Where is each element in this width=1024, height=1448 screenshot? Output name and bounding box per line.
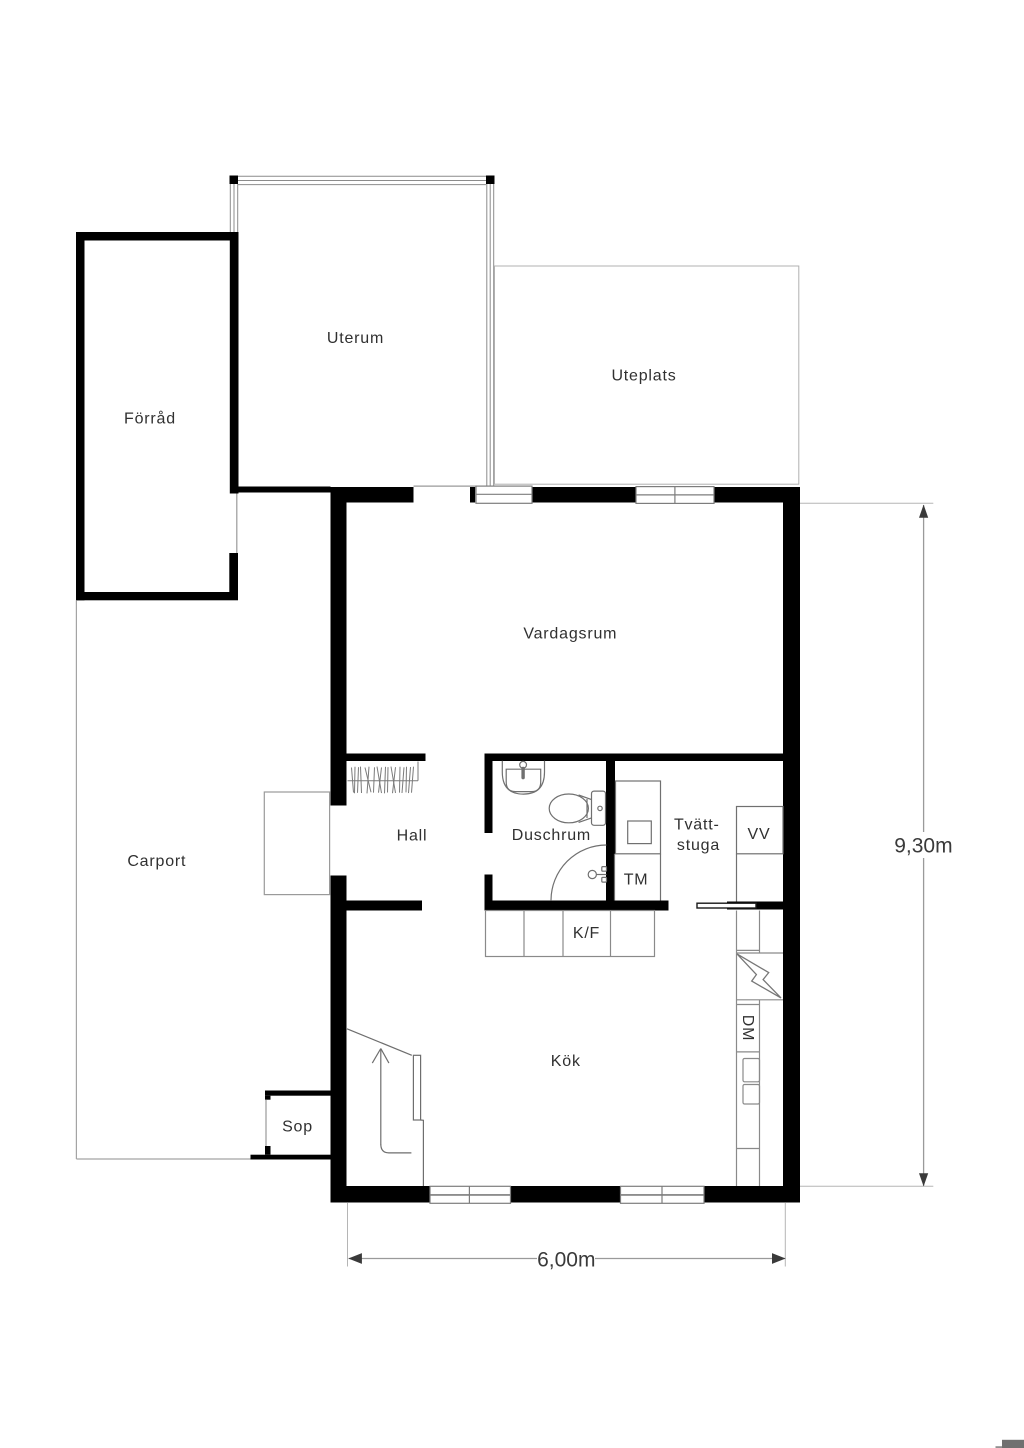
svg-text:TM: TM xyxy=(624,871,649,888)
svg-text:6,00m: 6,00m xyxy=(537,1248,595,1271)
svg-text:DM: DM xyxy=(739,1015,756,1041)
svg-text:Tvätt-: Tvätt- xyxy=(674,816,720,833)
svg-text:Uterum: Uterum xyxy=(327,330,384,347)
svg-text:Sop: Sop xyxy=(282,1119,313,1136)
svg-text:K/F: K/F xyxy=(573,925,600,942)
svg-text:Kök: Kök xyxy=(551,1053,581,1070)
svg-text:Duschrum: Duschrum xyxy=(512,827,591,844)
svg-text:Förråd: Förråd xyxy=(124,410,176,428)
svg-text:Hall: Hall xyxy=(397,827,428,844)
svg-text:Vardagsrum: Vardagsrum xyxy=(523,625,617,642)
svg-text:VV: VV xyxy=(748,826,771,843)
svg-text:Uteplats: Uteplats xyxy=(611,367,676,384)
svg-text:9,30m: 9,30m xyxy=(894,835,952,858)
svg-text:stuga: stuga xyxy=(677,837,720,854)
svg-text:Carport: Carport xyxy=(127,853,186,870)
